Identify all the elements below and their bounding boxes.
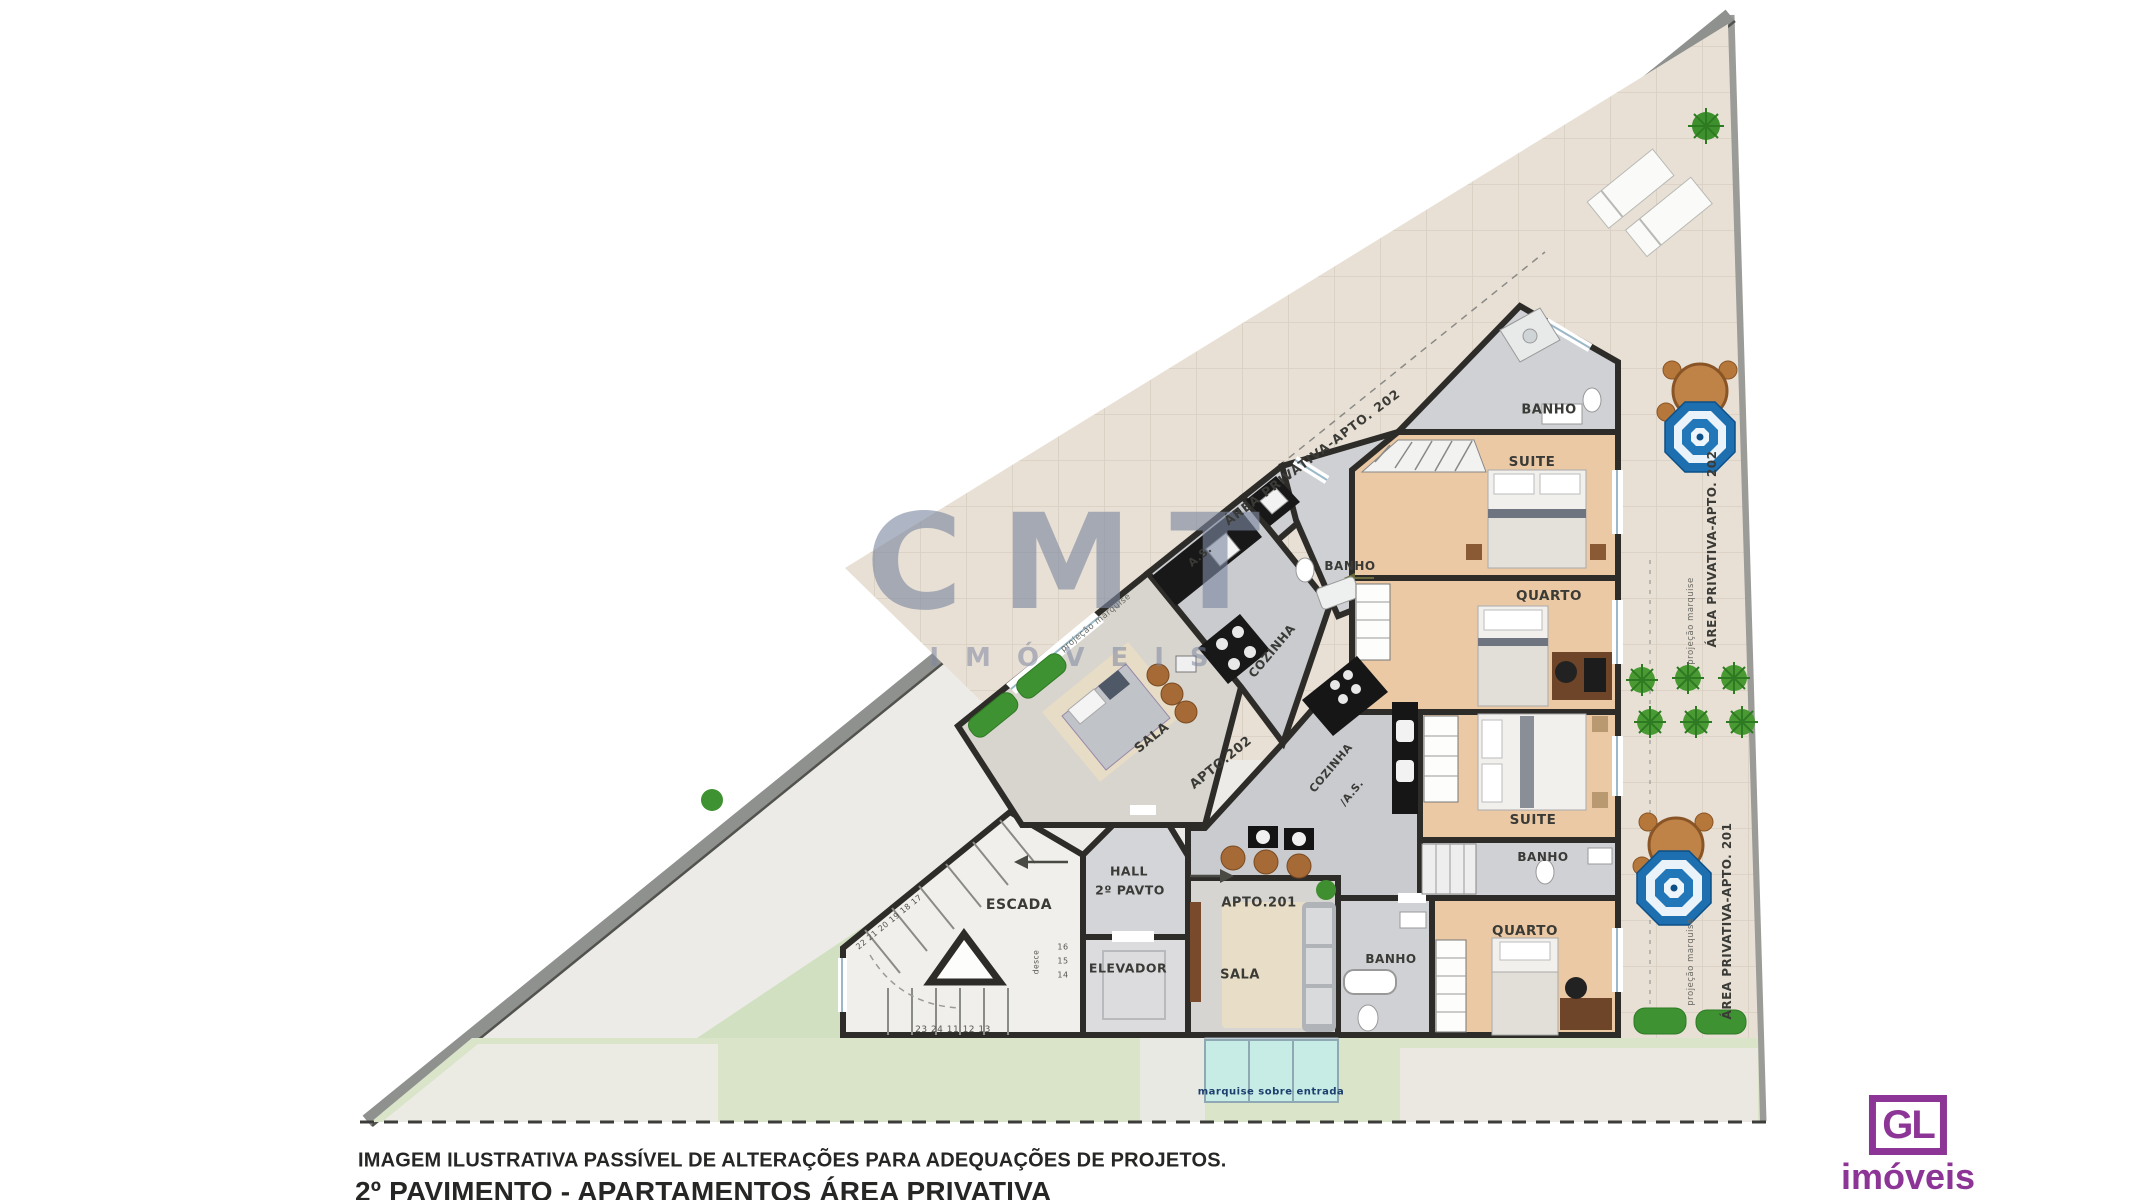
floorplan-drawing	[0, 0, 2140, 1200]
label-banho-201: BANHO	[1365, 952, 1416, 966]
label-area-privativa-201-vertical: ÁREA PRIVATIVA-APTO. 201	[1720, 823, 1734, 1020]
label-elevador: ELEVADOR	[1089, 961, 1167, 976]
label-projecao-201: projeção marquise	[1686, 918, 1696, 1005]
stair-desce: desce	[1032, 950, 1041, 975]
label-area-privativa-202-vertical: ÁREA PRIVATIVA-APTO. 202	[1705, 451, 1719, 648]
label-banho-suite-201: BANHO	[1517, 850, 1568, 864]
label-escada: ESCADA	[986, 897, 1052, 913]
label-projecao-202: projeção marquise	[1686, 577, 1696, 664]
stair-number-14: 14	[1057, 971, 1068, 980]
gl-logo-initials: GL	[1882, 1103, 1934, 1148]
floorplan-page: CMT IMÓVEIS BANHO SUITE QUARTO SUITE BAN…	[0, 0, 2140, 1200]
label-suite-202: SUITE	[1509, 454, 1556, 470]
label-banho-suite-202: BANHO	[1521, 403, 1576, 418]
stair-numbers-bottom: 23 24 11 12 13	[915, 1025, 991, 1035]
page-title: 2º PAVIMENTO - APARTAMENTOS ÁREA PRIVATI…	[355, 1176, 1051, 1200]
label-hall: HALL	[1110, 864, 1148, 879]
label-quarto-202: QUARTO	[1516, 588, 1582, 604]
gl-imoveis-logo: GL imóveis	[1841, 1095, 1975, 1195]
label-hall-pavto: 2º PAVTO	[1095, 883, 1165, 898]
umbrella-icon-201	[1637, 851, 1711, 925]
gl-logo-name: imóveis	[1841, 1159, 1975, 1195]
stair-number-16: 16	[1057, 943, 1068, 952]
label-sala-201: SALA	[1220, 968, 1260, 983]
stair-number-15: 15	[1057, 957, 1068, 966]
label-apto-201: APTO.201	[1221, 896, 1296, 911]
small-bush	[701, 789, 723, 811]
label-quarto-201: QUARTO	[1492, 923, 1558, 939]
label-suite-201: SUITE	[1510, 812, 1557, 828]
umbrella-icon-202	[1665, 402, 1735, 472]
disclaimer-text: IMAGEM ILUSTRATIVA PASSÍVEL DE ALTERAÇÕE…	[358, 1150, 1227, 1173]
label-banho-202: BANHO	[1324, 559, 1375, 573]
gl-logo-box: GL	[1869, 1095, 1947, 1155]
label-marquise: marquise sobre entrada	[1198, 1087, 1344, 1098]
